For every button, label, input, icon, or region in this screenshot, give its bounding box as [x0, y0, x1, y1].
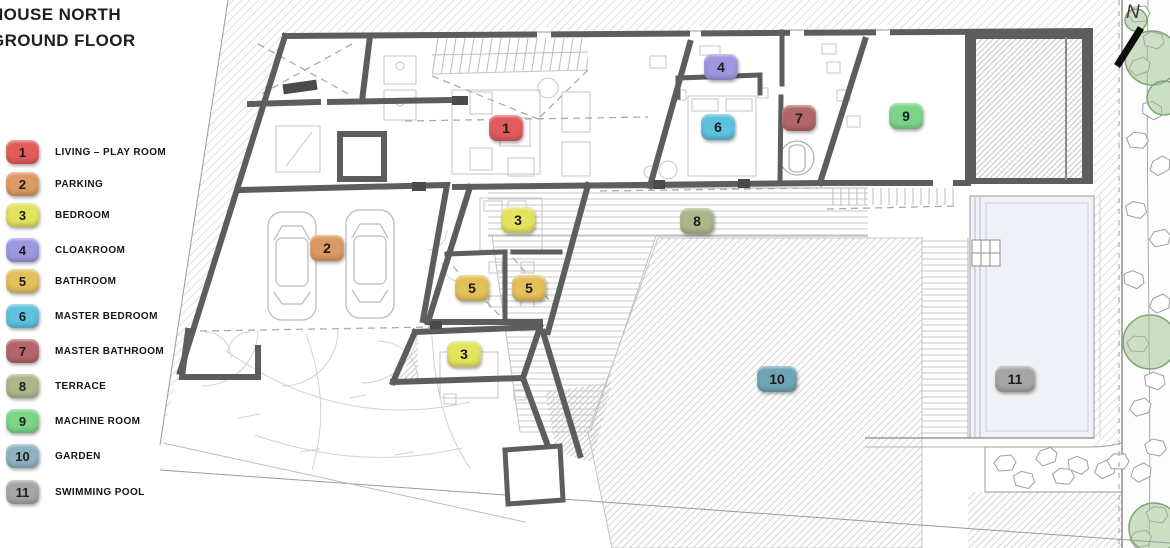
- legend-badge-2: 2: [6, 172, 39, 196]
- legend-badge-6: 6: [6, 304, 39, 328]
- legend-item-bathroom: 5 BATHROOM: [6, 269, 116, 293]
- title-line-2: GROUND FLOOR: [0, 28, 136, 54]
- legend-badge-8: 8: [6, 374, 39, 398]
- legend-badge-9: 9: [6, 409, 39, 433]
- plan-badge-master-bathroom: 7: [782, 105, 816, 131]
- legend-item-living: 1 LIVING – PLAY ROOM: [6, 140, 166, 164]
- floor-plan-drawing: N: [0, 0, 1170, 548]
- plan-badge-garden: 10: [757, 366, 797, 392]
- legend-item-master-bathroom: 7 MASTER BATHROOM: [6, 339, 164, 363]
- legend-badge-7: 7: [6, 339, 39, 363]
- legend-badge-5: 5: [6, 269, 39, 293]
- car-1: [268, 212, 316, 320]
- plan-badge-bedroom-lower: 3: [447, 341, 481, 367]
- plan-badge-bedroom-upper: 3: [501, 207, 535, 233]
- plan-badge-bathroom-right: 5: [512, 275, 546, 301]
- plan-badge-bathroom-left: 5: [455, 275, 489, 301]
- legend-badge-1: 1: [6, 140, 39, 164]
- plan-badge-cloakroom: 4: [704, 54, 738, 80]
- plan-badge-parking: 2: [310, 235, 344, 261]
- plan-badge-swimming-pool: 11: [995, 366, 1035, 392]
- legend-item-master-bedroom: 6 MASTER BEDROOM: [6, 304, 158, 328]
- drawing-title: HOUSE NORTH GROUND FLOOR: [0, 2, 136, 53]
- legend-item-machine-room: 9 MACHINE ROOM: [6, 409, 140, 433]
- plan-badge-living: 1: [489, 115, 523, 141]
- legend-badge-3: 3: [6, 203, 39, 227]
- legend-badge-4: 4: [6, 238, 39, 262]
- north-label: N: [1126, 2, 1140, 23]
- legend-badge-10: 10: [6, 444, 39, 468]
- title-line-1: HOUSE NORTH: [0, 2, 136, 28]
- legend-badge-11: 11: [6, 480, 39, 504]
- plan-badge-terrace: 8: [680, 208, 714, 234]
- legend-item-bedroom: 3 BEDROOM: [6, 203, 110, 227]
- plan-badge-master-bedroom: 6: [701, 114, 735, 140]
- legend-item-garden: 10 GARDEN: [6, 444, 101, 468]
- legend-item-terrace: 8 TERRACE: [6, 374, 106, 398]
- legend-item-swimming-pool: 11 SWIMMING POOL: [6, 480, 145, 504]
- plan-badge-machine-room: 9: [889, 103, 923, 129]
- car-2: [346, 210, 394, 318]
- cars: [268, 210, 394, 320]
- floor-plan-page: N HOUSE NORTH GROUND FLOOR 1 LIVING – PL…: [0, 0, 1170, 548]
- legend-item-parking: 2 PARKING: [6, 172, 103, 196]
- legend-item-cloakroom: 4 CLOAKROOM: [6, 238, 125, 262]
